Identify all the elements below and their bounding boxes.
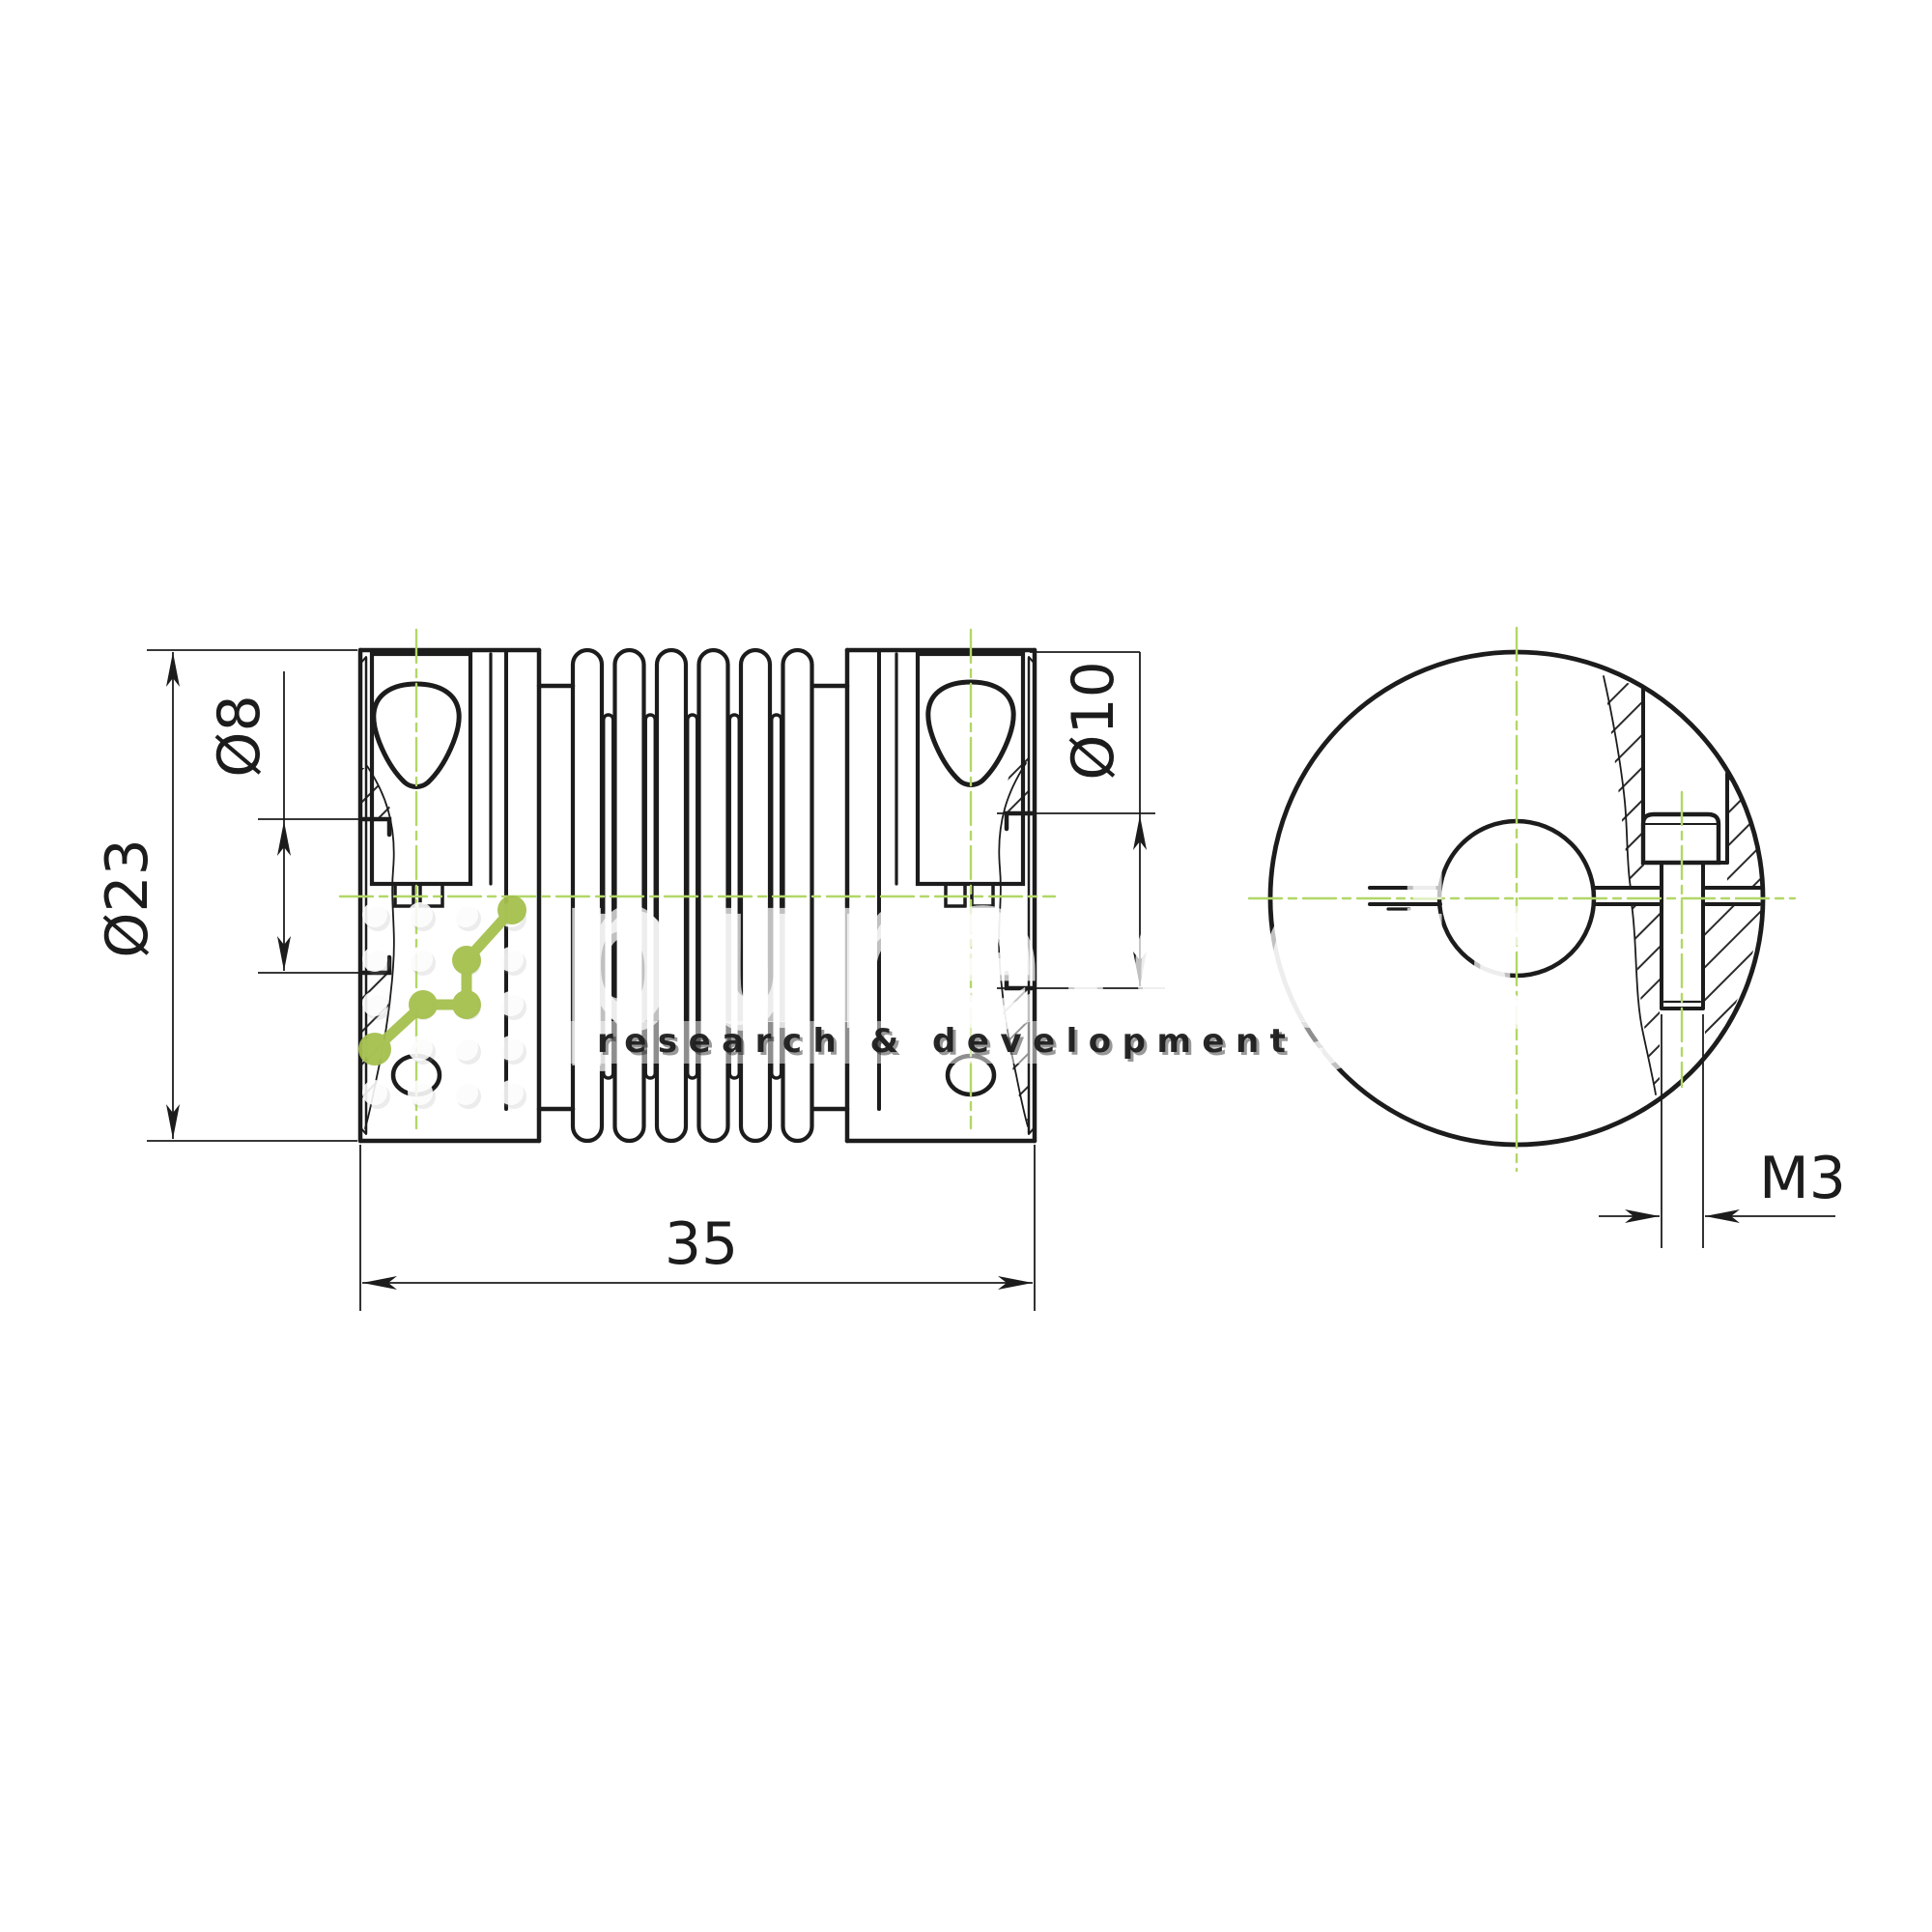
- dimension-bore-left: Ø8: [206, 671, 363, 973]
- dim-outer-diameter-label: Ø23: [94, 838, 161, 958]
- dimension-overall-length: 35: [360, 1145, 1035, 1311]
- dim-overall-length-label: 35: [665, 1210, 738, 1278]
- dimension-screw-thread: M3: [1599, 1014, 1846, 1248]
- watermark-tagline: research & development research & develo…: [563, 1021, 1322, 1064]
- watermark-tagline-text: research & development: [597, 1022, 1296, 1061]
- dim-bore-right-label: Ø10: [1060, 661, 1127, 781]
- dim-bore-left-label: Ø8: [206, 695, 273, 777]
- watermark: purelogic purelogic research & developme…: [358, 829, 1588, 1109]
- left-clamp-window: [372, 654, 470, 884]
- dim-screw-thread-label: M3: [1759, 1145, 1846, 1212]
- drawing-svg: Ø23 Ø8 Ø10 35: [0, 0, 1932, 1932]
- technical-drawing-canvas: Ø23 Ø8 Ø10 35: [0, 0, 1932, 1932]
